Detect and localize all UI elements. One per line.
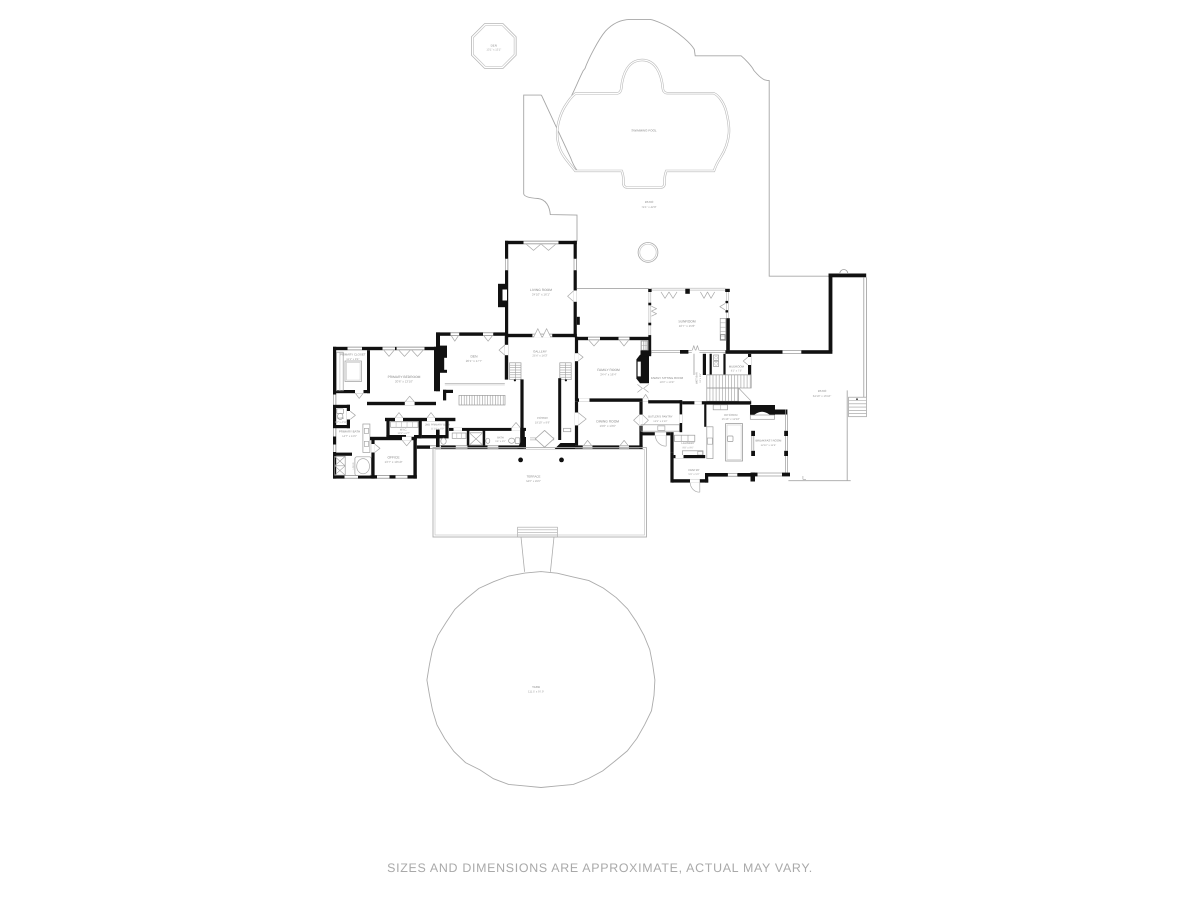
svg-text:BUTLER'S PANTRY: BUTLER'S PANTRY <box>648 416 673 419</box>
svg-text:DINING ROOM: DINING ROOM <box>596 419 619 423</box>
svg-text:FAMILY SITTING ROOM: FAMILY SITTING ROOM <box>651 376 684 380</box>
svg-text:24'10" x 16'1": 24'10" x 16'1" <box>532 292 550 296</box>
svg-text:DEN: DEN <box>491 44 497 48</box>
svg-text:YARD: YARD <box>532 685 541 689</box>
svg-text:BATH: BATH <box>337 417 344 420</box>
svg-text:10'9" x 6'7": 10'9" x 6'7" <box>397 432 409 435</box>
svg-text:74'1" x 42'8": 74'1" x 42'8" <box>641 205 656 209</box>
svg-text:19'6" x 13'6": 19'6" x 13'6" <box>599 424 615 428</box>
svg-text:KITCHEN: KITCHEN <box>724 413 737 417</box>
svg-text:9'8" x 9'6": 9'8" x 9'6" <box>682 446 693 449</box>
svg-text:19'0" x 13'9": 19'0" x 13'9" <box>660 381 675 384</box>
svg-text:OFFICE: OFFICE <box>387 456 400 460</box>
svg-text:PRIMARY BEDROOM: PRIMARY BEDROOM <box>388 375 421 379</box>
svg-text:PRIMARY CLOSET: PRIMARY CLOSET <box>340 353 366 357</box>
svg-text:20'6" x 13'10": 20'6" x 13'10" <box>395 380 413 384</box>
svg-text:BATH: BATH <box>497 437 504 440</box>
svg-text:PATIO: PATIO <box>818 389 827 393</box>
svg-text:111.5' x 97.9': 111.5' x 97.9' <box>528 690 545 694</box>
svg-text:11'1" x 9'4": 11'1" x 9'4" <box>346 358 359 361</box>
svg-text:FAMILY ROOM: FAMILY ROOM <box>597 368 620 372</box>
svg-text:34'10" x 16'10": 34'10" x 16'10" <box>813 394 831 398</box>
svg-text:FOYER: FOYER <box>537 416 548 420</box>
svg-text:13'7" x 10'10": 13'7" x 10'10" <box>384 460 402 464</box>
svg-text:19'10" x 9'9": 19'10" x 9'9" <box>535 420 550 424</box>
svg-text:SUNROOM: SUNROOM <box>678 320 695 324</box>
svg-text:10' x 3'6": 10' x 3'6" <box>699 373 702 383</box>
svg-text:PATIO: PATIO <box>645 200 654 204</box>
svg-text:14'7" x 13'6": 14'7" x 13'6" <box>342 435 357 438</box>
svg-text:TERRACE: TERRACE <box>527 474 541 478</box>
svg-text:64'0" x 29'6": 64'0" x 29'6" <box>526 480 541 483</box>
svg-text:DEN: DEN <box>471 354 479 358</box>
svg-text:LAUNDRY: LAUNDRY <box>681 441 694 445</box>
svg-text:12'9" x 6'10": 12'9" x 6'10" <box>653 420 667 423</box>
svg-text:WET BAR: WET BAR <box>696 372 699 384</box>
svg-text:25'4" x 14'3": 25'4" x 14'3" <box>532 354 547 358</box>
svg-text:LIVING ROOM: LIVING ROOM <box>530 288 552 292</box>
svg-text:5'9" x 5'0": 5'9" x 5'0" <box>688 473 699 476</box>
svg-text:BREAKFAST ROOM: BREAKFAST ROOM <box>755 439 782 443</box>
svg-text:MUDROOM: MUDROOM <box>729 364 745 368</box>
svg-text:16'7" x 15'8": 16'7" x 15'8" <box>679 324 695 328</box>
svg-text:24'4" x 16'4": 24'4" x 16'4" <box>600 373 616 377</box>
svg-text:5'6" x 4'9": 5'6" x 4'9" <box>495 440 506 443</box>
svg-text:13'1" x 13'1": 13'1" x 13'1" <box>486 49 501 52</box>
svg-text:5'2" x 4'11": 5'2" x 4'11" <box>335 421 347 424</box>
svg-text:8'2" x 7'3": 8'2" x 7'3" <box>731 370 742 373</box>
svg-text:SWIMMING POOL: SWIMMING POOL <box>631 129 656 133</box>
svg-text:W.I.C.: W.I.C. <box>400 428 408 431</box>
svg-text:15'10" x 12'10": 15'10" x 12'10" <box>722 417 740 421</box>
svg-text:12'10" x 12'4": 12'10" x 12'4" <box>761 444 777 447</box>
svg-text:PRIMARY BATH: PRIMARY BATH <box>339 430 360 434</box>
svg-text:20'1" x 17'7": 20'1" x 17'7" <box>466 359 482 363</box>
svg-text:PANTRY: PANTRY <box>688 468 699 472</box>
svg-text:SIZES AND DIMENSIONS ARE APPRO: SIZES AND DIMENSIONS ARE APPROXIMATE, AC… <box>387 861 813 875</box>
